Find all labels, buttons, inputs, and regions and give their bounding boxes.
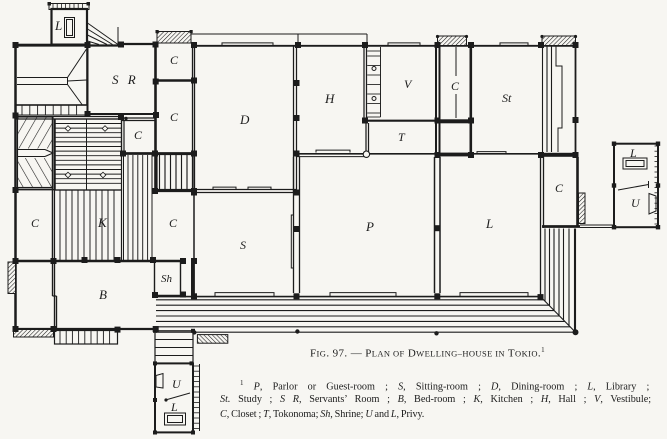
svg-text:C: C bbox=[555, 181, 564, 195]
svg-text:Sh: Sh bbox=[161, 273, 173, 285]
svg-text:U: U bbox=[631, 196, 641, 210]
svg-text:S R: S R bbox=[112, 72, 139, 87]
svg-text:L: L bbox=[170, 400, 178, 414]
svg-text:D: D bbox=[239, 112, 250, 127]
svg-text:U: U bbox=[172, 377, 182, 391]
svg-text:C: C bbox=[170, 110, 179, 124]
svg-text:C: C bbox=[31, 216, 40, 230]
svg-text:B: B bbox=[99, 287, 107, 302]
svg-text:H: H bbox=[324, 91, 335, 106]
svg-text:L: L bbox=[485, 216, 493, 231]
svg-text:T: T bbox=[398, 130, 406, 144]
svg-text:L: L bbox=[54, 18, 62, 33]
svg-text:St: St bbox=[502, 91, 512, 105]
svg-text:C: C bbox=[451, 79, 460, 93]
svg-text:P: P bbox=[365, 219, 374, 234]
svg-text:K: K bbox=[97, 215, 108, 230]
svg-text:L: L bbox=[629, 146, 637, 160]
svg-text:C: C bbox=[134, 128, 143, 142]
svg-text:S: S bbox=[240, 238, 246, 252]
svg-text:V: V bbox=[404, 77, 413, 91]
svg-text:C: C bbox=[169, 216, 178, 230]
svg-text:C: C bbox=[170, 53, 179, 67]
